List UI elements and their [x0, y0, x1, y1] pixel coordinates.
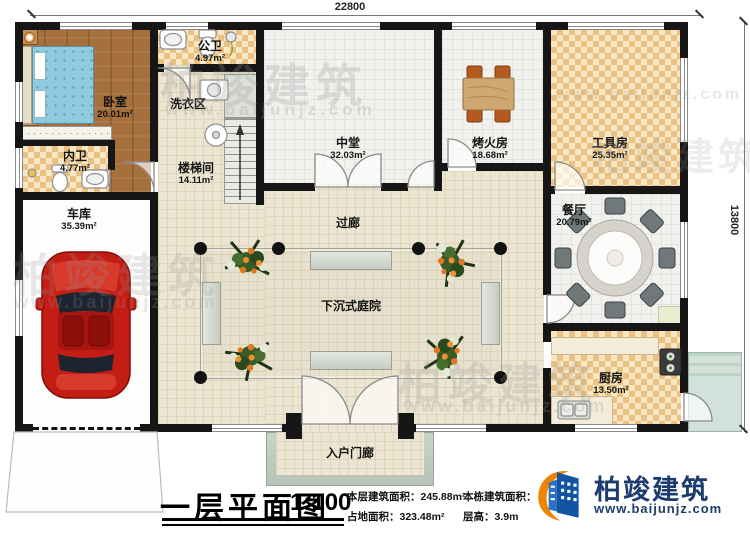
- room-name: 烤火房: [472, 136, 508, 150]
- window: [166, 22, 208, 30]
- stat-label: 本栋建筑面积：: [463, 491, 537, 503]
- room-area: 14.11m²: [163, 176, 229, 187]
- window: [680, 58, 688, 142]
- wall-innerbath-east: [108, 140, 115, 170]
- room-label-corridor: 过廊: [318, 217, 378, 231]
- entrance-column: [398, 413, 414, 439]
- wall-publicbath-bottom: [190, 64, 256, 72]
- room-area: 25.35m²: [575, 151, 645, 162]
- entrance-column: [286, 413, 302, 439]
- room-area: 13.50m²: [576, 386, 646, 397]
- wall-innerbath-top: [22, 140, 115, 146]
- wall-hall-fire: [434, 22, 442, 191]
- garage-floor: [23, 200, 150, 425]
- room-area: 4.97m²: [180, 54, 240, 65]
- bench: [310, 251, 392, 270]
- lamp-icon: [24, 32, 35, 43]
- stat-storey-height: 层高：3.9m: [463, 509, 518, 524]
- company-website: www.baijunjz.com: [594, 501, 722, 516]
- column: [194, 242, 207, 255]
- room-label-kitchen: 厨房13.50m²: [576, 372, 646, 397]
- room-name: 入户门廊: [326, 446, 374, 460]
- window: [15, 82, 23, 122]
- kitchen-counter: [551, 396, 613, 425]
- room-name: 厨房: [599, 371, 623, 385]
- room-area: 32.03m²: [313, 151, 383, 162]
- window: [60, 22, 132, 30]
- stat-value: 323.48m²: [400, 511, 445, 523]
- wardrobe-icon: [22, 126, 112, 140]
- room-area: 20.01m²: [80, 110, 150, 121]
- wall-garage-east: [150, 192, 158, 432]
- room-label-laundry: 洗衣区: [158, 98, 218, 112]
- plan-scale: 1:100: [290, 489, 351, 517]
- stat-footprint-area: 占地面积：323.48m²: [347, 509, 444, 524]
- wall-stair-east: [256, 22, 264, 205]
- wall-garage-top: [15, 192, 158, 200]
- window: [452, 22, 536, 30]
- room-area: 18.68m²: [455, 151, 525, 162]
- column: [272, 242, 285, 255]
- room-name: 卧室: [103, 95, 127, 109]
- dimension-right: 13800: [728, 190, 740, 250]
- room-name: 公卫: [198, 39, 222, 53]
- room-name: 餐厅: [562, 203, 586, 217]
- stat-label: 本层建筑面积：: [347, 491, 421, 503]
- column: [494, 242, 507, 255]
- dimension-line-top: [30, 15, 700, 16]
- room-name: 车库: [67, 207, 91, 221]
- stat-building-area: 本栋建筑面积：: [463, 489, 537, 504]
- wall-east-column: [543, 22, 551, 295]
- room-name: 下沉式庭院: [321, 299, 381, 313]
- wall-east-column: [543, 368, 551, 432]
- garage-door-dashed: [33, 427, 140, 430]
- window: [568, 22, 664, 30]
- bench: [202, 282, 221, 345]
- room-label-tool-room: 工具房25.35m²: [575, 137, 645, 162]
- title-underline: [162, 518, 344, 521]
- room-label-stairwell: 楼梯间14.11m²: [163, 162, 229, 187]
- column: [412, 242, 425, 255]
- stair-landing: [224, 74, 257, 118]
- room-name: 内卫: [63, 149, 87, 163]
- stat-label: 层高：: [463, 511, 495, 523]
- window: [282, 22, 380, 30]
- wall-dining-kitchen: [551, 323, 688, 331]
- window: [575, 424, 637, 432]
- wall-toolroom-bottom: [551, 186, 555, 194]
- tool-room-floor: [551, 29, 681, 187]
- room-label-porch: 入户门廊: [310, 447, 390, 461]
- wall-hall-bottom: [262, 183, 315, 191]
- room-label-middle-hall: 中堂32.03m²: [313, 137, 383, 162]
- kitchen-counter: [551, 337, 659, 355]
- bench: [310, 351, 392, 370]
- bench: [481, 282, 500, 345]
- dimension-tick: [27, 9, 36, 18]
- room-name: 中堂: [336, 136, 360, 150]
- room-label-inner-bath: 内卫4.77m²: [45, 150, 105, 175]
- room-label-fire-room: 烤火房18.68m²: [455, 137, 525, 162]
- dimension-top: 22800: [320, 1, 380, 13]
- wall-garage-stub: [15, 424, 33, 432]
- room-label-garage: 车库35.39m²: [44, 208, 114, 233]
- stairs-icon: [224, 118, 257, 204]
- column: [194, 371, 207, 384]
- wall-publicbath-bottom: [158, 64, 164, 72]
- window: [15, 148, 23, 188]
- room-name: 工具房: [592, 136, 628, 150]
- window: [212, 424, 282, 432]
- room-label-courtyard: 下沉式庭院: [301, 300, 401, 314]
- floor-plan-canvas: 卧室20.01m² 内卫4.77m² 公卫4.97m² 洗衣区 楼梯间14.11…: [0, 0, 750, 535]
- room-name: 洗衣区: [170, 97, 206, 111]
- wall-fireroom-bottom: [442, 163, 448, 171]
- pillow: [34, 90, 46, 118]
- wall-fireroom-bottom: [476, 163, 551, 171]
- room-name: 楼梯间: [178, 161, 214, 175]
- wall-hall-bottom: [381, 183, 408, 191]
- dimension-line-right: [744, 22, 745, 432]
- stat-floor-area: 本层建筑面积：245.88m²: [347, 489, 465, 504]
- stat-value: 245.88m²: [421, 491, 466, 503]
- room-name: 过廊: [336, 216, 360, 230]
- room-label-dining: 餐厅20.79m²: [536, 204, 612, 229]
- window: [680, 222, 688, 298]
- room-area: 20.79m²: [536, 218, 612, 229]
- dimension-tick: [695, 9, 704, 18]
- company-logo-icon: [528, 464, 590, 526]
- wall-bedroom-east: [150, 22, 158, 162]
- bed-headboard: [22, 46, 32, 124]
- room-label-bedroom: 卧室20.01m²: [80, 96, 150, 121]
- side-deck: [688, 352, 742, 432]
- room-area: 35.39m²: [44, 222, 114, 233]
- column: [494, 371, 507, 384]
- title-underline: [162, 524, 344, 526]
- pillow: [34, 52, 46, 80]
- stat-label: 占地面积：: [347, 511, 400, 523]
- window: [15, 280, 23, 336]
- wall-east-column: [543, 323, 551, 342]
- stat-value: 3.9m: [495, 511, 519, 523]
- room-area: 4.77m²: [45, 164, 105, 175]
- room-label-public-bath: 公卫4.97m²: [180, 40, 240, 65]
- wall-toolroom-bottom: [585, 186, 688, 194]
- window: [416, 424, 486, 432]
- driveway: [6, 432, 163, 512]
